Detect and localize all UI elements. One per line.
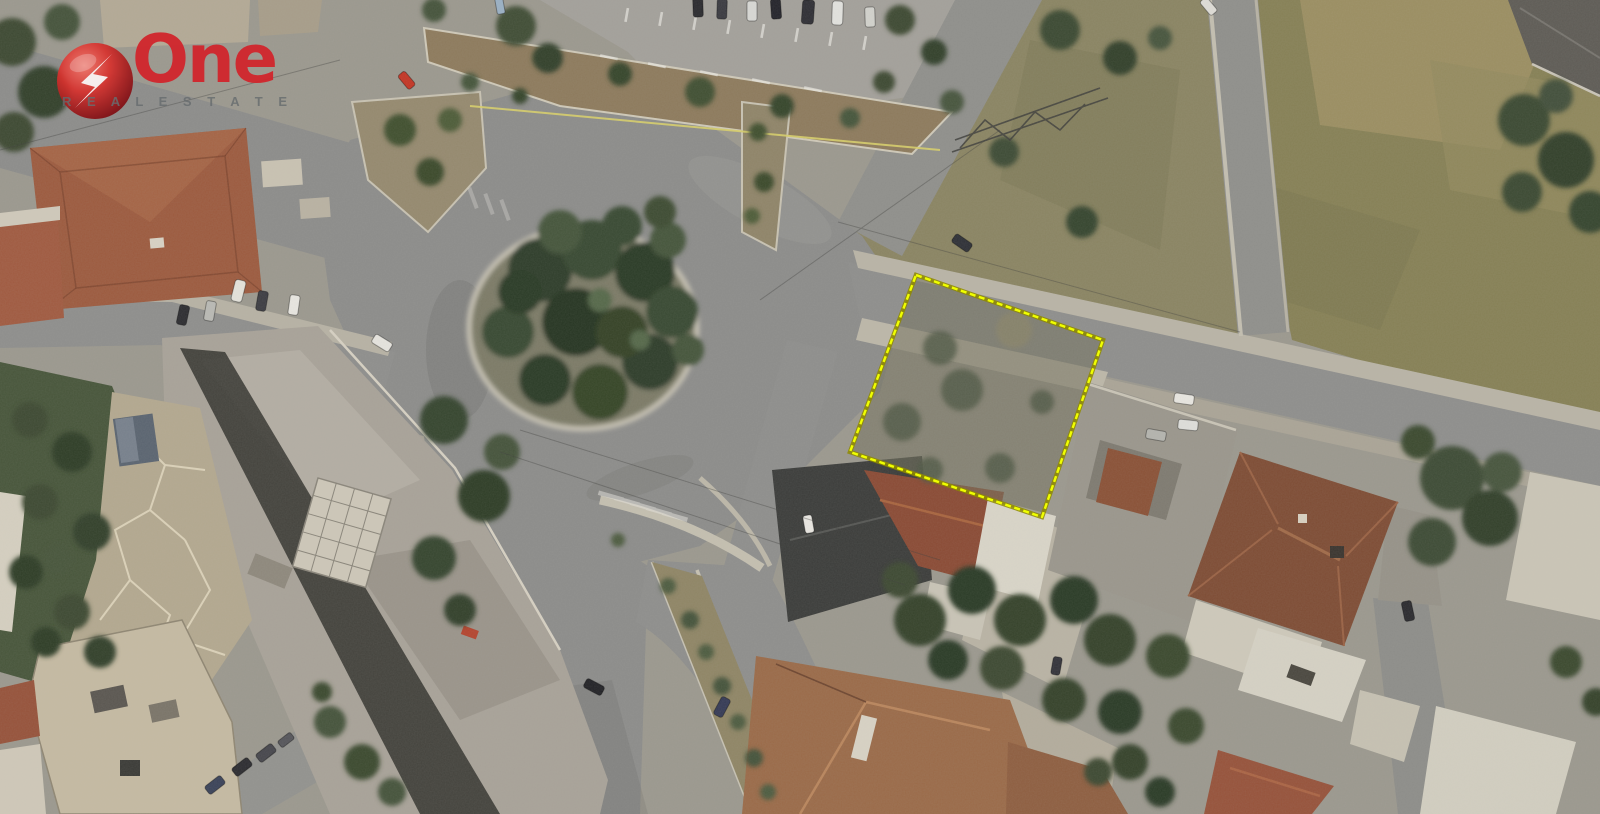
- aerial-photo-canvas: [0, 0, 1600, 814]
- satellite-map: One R E A L E S T A T E: [0, 0, 1600, 814]
- logo-subtitle-text: R E A L E S T A T E: [62, 94, 293, 109]
- logo-brand-text: One: [132, 20, 276, 98]
- photo-grain-overlay: [0, 0, 1600, 814]
- logo-wordmark: One R E A L E S T A T E: [132, 26, 293, 109]
